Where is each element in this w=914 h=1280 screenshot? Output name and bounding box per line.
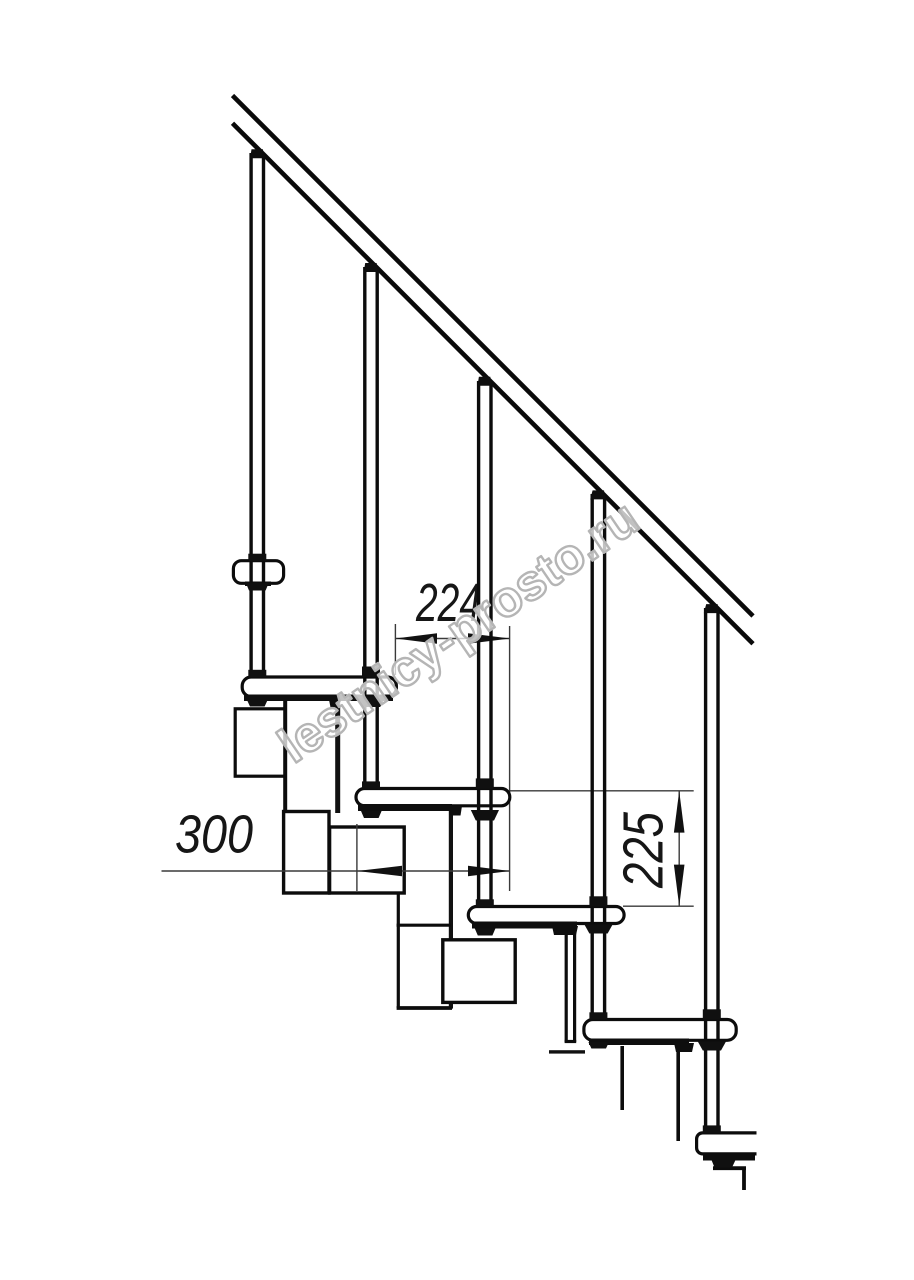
- svg-text:300: 300: [175, 805, 253, 865]
- svg-text:225: 225: [612, 812, 676, 889]
